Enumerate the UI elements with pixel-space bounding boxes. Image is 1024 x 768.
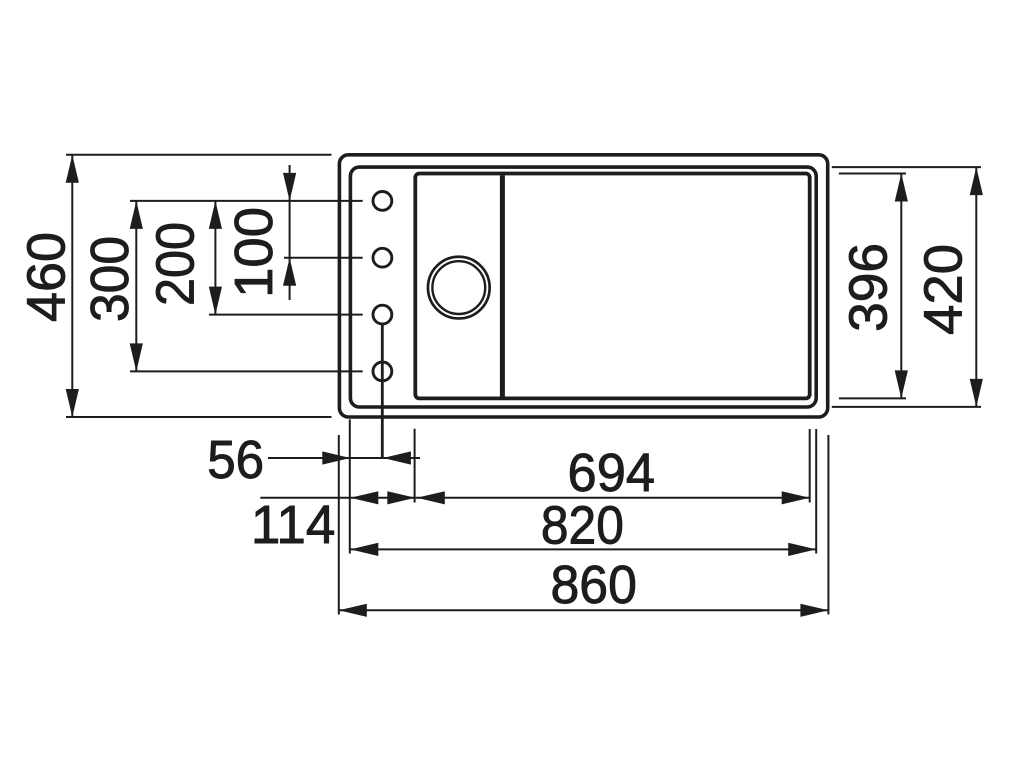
svg-text:396: 396 — [839, 243, 899, 332]
svg-text:200: 200 — [146, 222, 206, 306]
svg-text:860: 860 — [550, 555, 637, 615]
svg-text:114: 114 — [251, 495, 336, 555]
svg-text:694: 694 — [568, 443, 656, 503]
svg-text:460: 460 — [16, 232, 76, 322]
svg-text:100: 100 — [224, 207, 284, 298]
svg-text:56: 56 — [207, 430, 264, 490]
svg-text:420: 420 — [913, 244, 973, 335]
svg-text:820: 820 — [541, 496, 624, 556]
svg-text:300: 300 — [80, 236, 140, 322]
